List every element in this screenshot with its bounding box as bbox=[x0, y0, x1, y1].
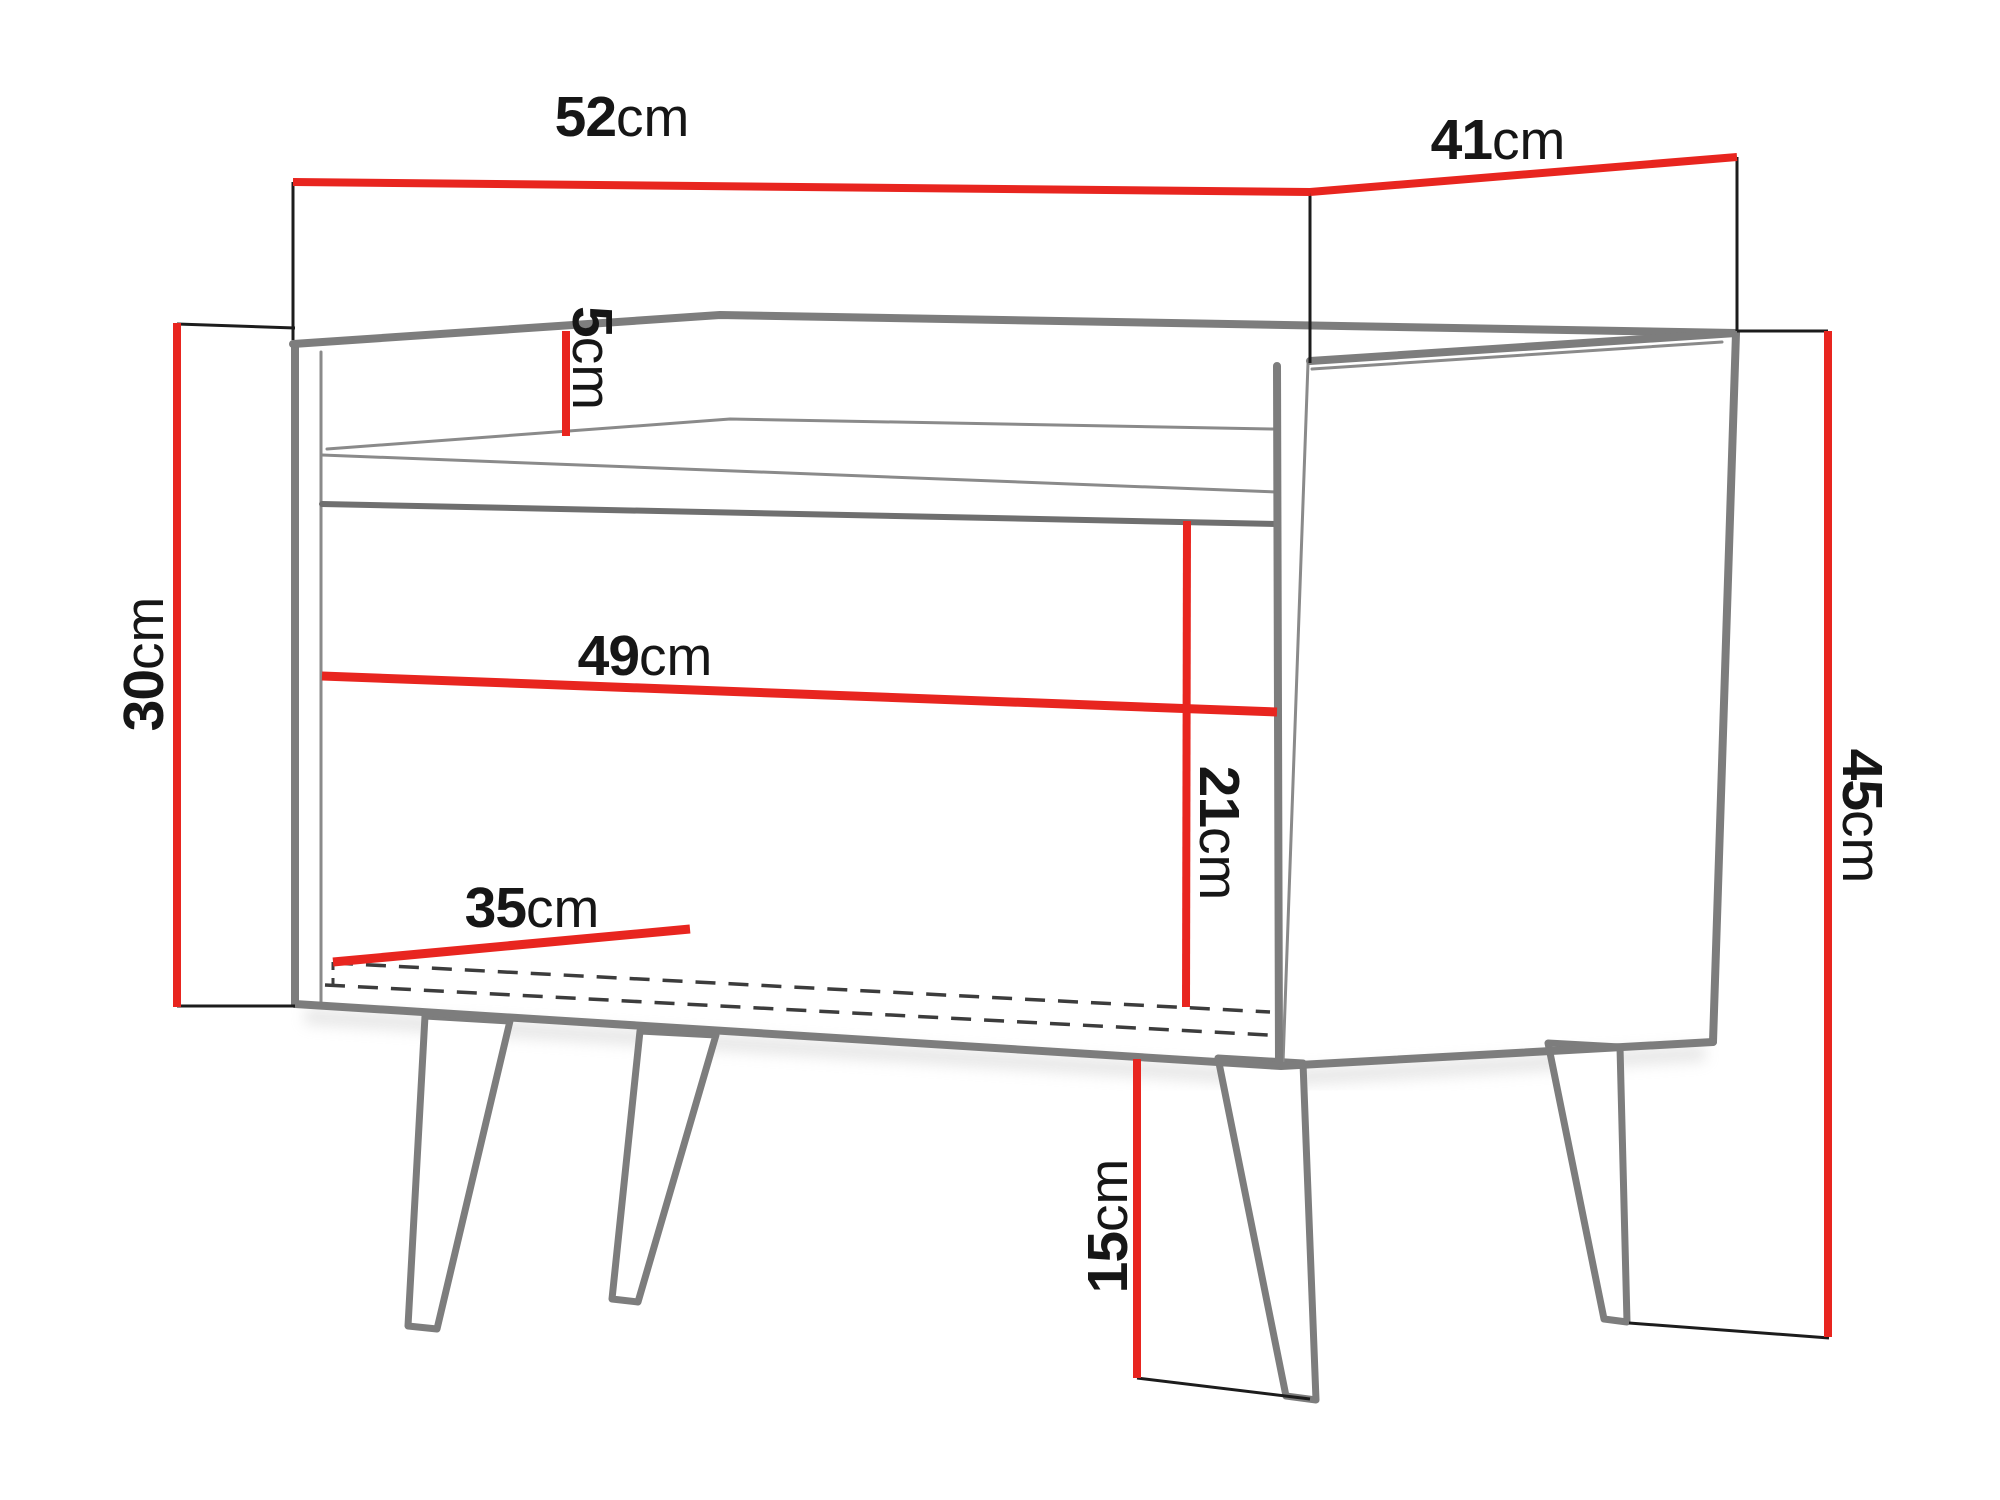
dimension-label-total-height: 45cm bbox=[1829, 749, 1895, 884]
cabinet-leg-front-left bbox=[408, 1016, 510, 1329]
dimension-unit: cm bbox=[616, 85, 689, 149]
dimension-unit: cm bbox=[526, 876, 599, 940]
dimension-label-body-height: 30cm bbox=[111, 597, 177, 732]
dimension-label-top-width: 52cm bbox=[555, 84, 690, 150]
dimension-value: 49 bbox=[578, 623, 639, 689]
dimension-label-inner-depth: 35cm bbox=[465, 875, 600, 941]
dimension-value: 52 bbox=[555, 84, 616, 150]
dimension-unit: cm bbox=[1492, 108, 1565, 172]
dimension-line-49cm bbox=[322, 676, 1277, 712]
furniture-drawing bbox=[0, 0, 2000, 1500]
dimension-unit: cm bbox=[560, 337, 624, 410]
dimension-value: 45 bbox=[1829, 749, 1895, 810]
dimension-unit: cm bbox=[1076, 1159, 1140, 1232]
dimension-unit: cm bbox=[639, 624, 712, 688]
dimension-unit: cm bbox=[112, 597, 176, 670]
dimension-value: 30 bbox=[111, 670, 177, 731]
dimension-label-rim-height: 5cm bbox=[559, 306, 625, 410]
cabinet-body bbox=[293, 315, 1736, 1066]
dimension-unit: cm bbox=[1830, 810, 1894, 883]
back-right-edge bbox=[1713, 333, 1736, 1042]
dimension-label-leg-height: 15cm bbox=[1075, 1159, 1141, 1294]
right-panel-top-edge bbox=[1310, 333, 1736, 361]
dimension-line-52cm bbox=[293, 182, 1310, 192]
dimension-label-top-depth: 41cm bbox=[1431, 107, 1566, 173]
dimension-label-inner-height: 21cm bbox=[1186, 766, 1252, 901]
cabinet-leg-front-right bbox=[1218, 1058, 1316, 1400]
ext-45-bottom bbox=[1629, 1323, 1829, 1338]
top-rim-edge bbox=[293, 315, 1736, 344]
dimension-value: 5 bbox=[559, 306, 625, 337]
dimension-value: 35 bbox=[465, 875, 526, 941]
recessed-top-front-edge bbox=[322, 455, 1277, 492]
right-panel-front-outer-edge bbox=[1283, 363, 1308, 1063]
dimension-label-inner-width: 49cm bbox=[578, 623, 713, 689]
top-rim-base-edge bbox=[327, 419, 1273, 449]
cabinet-leg-back-left bbox=[612, 1031, 716, 1302]
dimension-unit: cm bbox=[1187, 827, 1251, 900]
ext-30-top bbox=[177, 324, 295, 328]
dimension-value: 41 bbox=[1431, 107, 1492, 173]
diagram-canvas: 52cm 41cm 5cm 30cm 45cm 49cm 21cm 35cm 1… bbox=[0, 0, 2000, 1500]
dimension-value: 15 bbox=[1075, 1232, 1141, 1293]
dimension-line-21cm bbox=[1186, 521, 1187, 1007]
shelf-underside-edge bbox=[322, 504, 1277, 524]
cabinet-leg-back-right bbox=[1548, 1043, 1627, 1322]
dimension-value: 21 bbox=[1186, 766, 1252, 827]
hidden-bottom-top-edge bbox=[333, 963, 1270, 1012]
front-right-inner-edge bbox=[1277, 366, 1279, 1064]
